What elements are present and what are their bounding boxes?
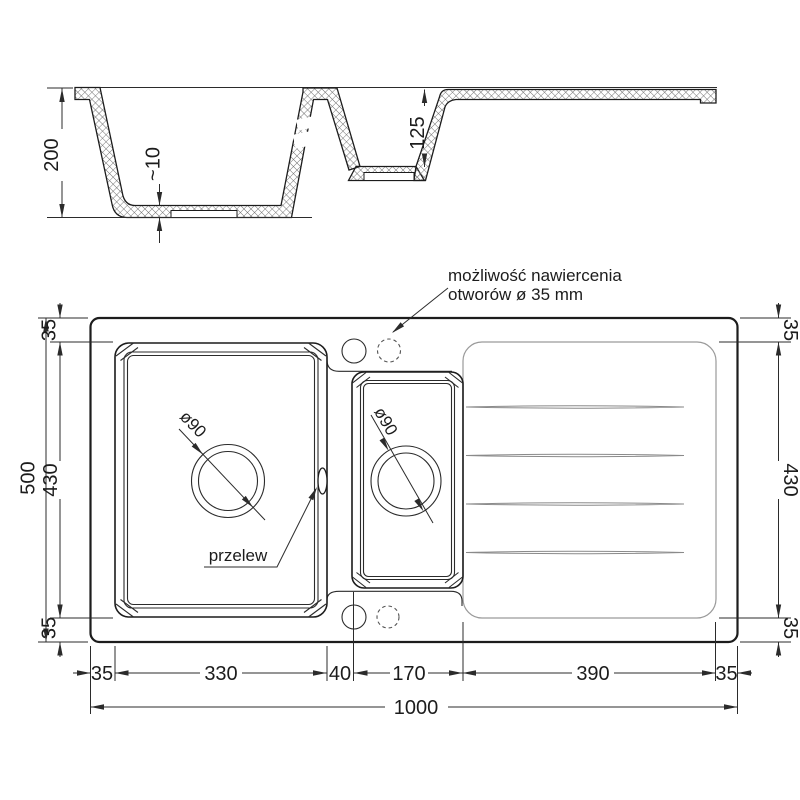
dims-bottom: 35 330 40 170 390 35 1000	[73, 622, 752, 719]
dim-right-top-rim: 35	[779, 319, 800, 341]
dim-bottom-drainer: 390	[576, 663, 609, 685]
dim-overall-depth: 200	[41, 88, 73, 218]
dim-base-thickness-label: ~10	[143, 147, 165, 181]
dim-bottom-divider: 40	[329, 663, 351, 685]
drainboard-grooves	[466, 406, 684, 554]
dim-left-bottom-rim: 35	[39, 617, 61, 639]
dim-bottom-main-bowl: 330	[204, 663, 237, 685]
faucet-hole-top	[342, 339, 366, 363]
dim-left-bowl-depth: 430	[40, 463, 62, 496]
sink-technical-drawing: 200 ~10 125	[0, 0, 800, 800]
optional-hole-bottom	[377, 606, 399, 628]
dim-base-thickness: ~10	[143, 147, 165, 243]
dim-overall-depth-label: 200	[41, 138, 63, 171]
small-drain-hole-inner	[378, 453, 434, 509]
dim-width-total: 1000	[394, 697, 439, 719]
dims-right: 35 430 35	[719, 303, 800, 657]
drilling-note-line1: możliwość nawiercenia	[448, 266, 622, 285]
optional-hole-top	[378, 339, 401, 362]
dim-left-top-rim: 35	[39, 319, 61, 341]
deck-contour-bottom	[327, 591, 462, 606]
main-bowl: ø90 przelew	[115, 343, 327, 617]
deck-contour-top	[327, 360, 452, 371]
sink-outline	[91, 318, 738, 642]
dim-bottom-left-rim: 35	[91, 663, 113, 685]
small-drain-recess	[364, 173, 414, 181]
main-bowl-corner-chamfers	[116, 343, 326, 617]
drilling-note: możliwość nawiercenia otworów ø 35 mm	[390, 266, 622, 335]
main-drain-recess	[171, 211, 237, 218]
drilling-note-line2: otworów ø 35 mm	[448, 285, 583, 304]
dim-right-drainer-depth: 430	[779, 463, 800, 496]
drainboard-section	[414, 90, 716, 181]
dim-bottom-right-rim: 35	[715, 663, 737, 685]
small-drain-hole	[371, 446, 441, 516]
dim-small-drain: ø90	[370, 404, 433, 523]
overflow-slot	[318, 468, 327, 494]
side-view-section: 200 ~10 125	[41, 88, 717, 244]
dim-small-bowl-depth: 125	[407, 90, 429, 168]
overflow-label: przelew	[209, 546, 268, 565]
dim-main-drain-label: ø90	[176, 407, 210, 441]
small-bowl: ø90	[352, 372, 463, 588]
dim-bottom-small-bowl: 170	[392, 663, 425, 685]
drainboard	[463, 342, 716, 618]
faucet-holes	[342, 339, 401, 681]
dim-small-bowl-depth-label: 125	[407, 116, 429, 149]
dim-right-bottom-rim: 35	[779, 617, 800, 639]
dim-small-drain-label: ø90	[370, 404, 401, 439]
main-bowl-section	[75, 88, 360, 218]
dim-height-total: 500	[18, 461, 40, 494]
dims-left: 500 35 430 35	[18, 303, 114, 657]
overflow-callout: przelew	[204, 486, 319, 567]
small-bowl-corner-chamfers	[353, 373, 463, 588]
top-view-plan: ø90 przelew	[18, 266, 800, 719]
